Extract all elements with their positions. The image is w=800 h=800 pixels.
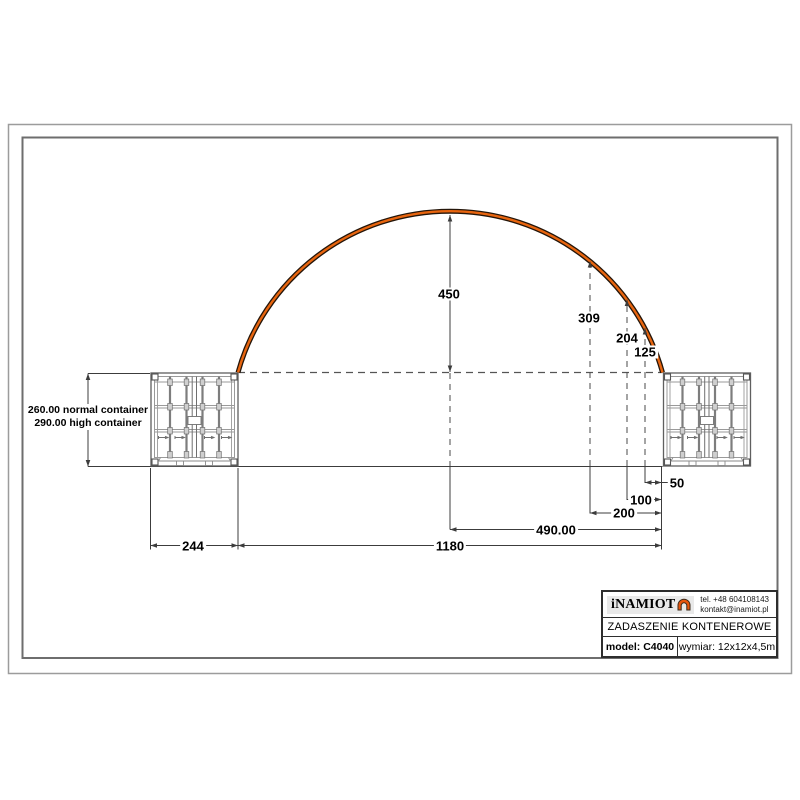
brand-name: iNAMIOT	[611, 597, 675, 613]
product-title: ZADASZENIE KONTENEROWE	[603, 618, 776, 637]
container-left	[151, 373, 238, 466]
title-block: iNAMIOT tel. +48 604108143 kontakt@inami…	[601, 590, 778, 658]
dim-height-at-200: 309	[576, 312, 602, 325]
container-right	[664, 373, 751, 466]
dim-height-center: 450	[436, 287, 462, 300]
title-block-bottom-row: model: C4040 wymiar: 12x12x4,5m	[603, 637, 776, 656]
title-block-header-row: iNAMIOT tel. +48 604108143 kontakt@inami…	[603, 592, 776, 618]
dim-offset-200: 200	[611, 507, 637, 520]
technical-drawing	[0, 0, 800, 800]
drawing-sheet: 450 309 204 125 50 100 200 490.00 1180 2…	[0, 0, 800, 800]
dim-offset-50: 50	[668, 476, 686, 489]
dim-offset-100: 100	[628, 493, 654, 506]
dim-span: 1180	[434, 539, 466, 552]
dim-height-at-100: 204	[614, 332, 640, 345]
arch-tent-icon	[676, 597, 692, 612]
brand-logo: iNAMIOT	[607, 596, 694, 614]
dim-height-at-50: 125	[632, 346, 658, 359]
model-label: model: C4040	[603, 637, 678, 656]
contact-email: kontakt@inamiot.pl	[700, 605, 769, 615]
dim-container-width: 244	[180, 539, 206, 552]
size-label: wymiar: 12x12x4,5m	[678, 637, 776, 656]
container-height-note: 260.00 normal container 290.00 high cont…	[26, 404, 150, 430]
container-height-note-line2: 290.00 high container	[28, 417, 148, 430]
contact-info: tel. +48 604108143 kontakt@inamiot.pl	[700, 595, 772, 614]
container-height-note-line1: 260.00 normal container	[28, 404, 148, 417]
contact-phone: tel. +48 604108143	[700, 595, 769, 605]
dim-half-span: 490.00	[534, 523, 578, 536]
